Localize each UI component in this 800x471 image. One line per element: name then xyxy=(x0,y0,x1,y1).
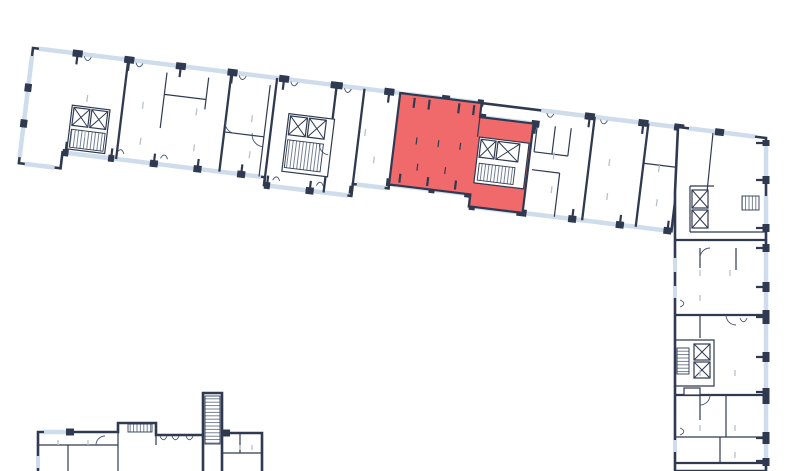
stairs-icon xyxy=(69,129,105,151)
elevator-icon xyxy=(90,110,108,130)
fragment-door-arc xyxy=(96,436,105,445)
stairs-icon xyxy=(205,396,220,444)
stairs-icon xyxy=(128,424,152,432)
fragment-door-squiggles xyxy=(160,436,193,440)
window-piers-cap xyxy=(715,132,724,133)
elevator-icon xyxy=(692,190,708,208)
elevator-icon xyxy=(694,362,710,378)
elevator-icon xyxy=(692,210,708,228)
core-middle xyxy=(282,114,335,177)
floor-plan-canvas xyxy=(0,0,800,471)
elevator-icon xyxy=(479,139,496,159)
bottom-fragment-group xyxy=(38,393,262,471)
floor-plan-svg xyxy=(0,0,800,471)
elevator-icon xyxy=(496,141,520,162)
right-wing-outline xyxy=(675,127,766,471)
stairs-icon xyxy=(677,348,689,374)
elevator-icon xyxy=(694,344,710,360)
duct-box xyxy=(684,388,700,395)
stairs-icon xyxy=(284,140,323,172)
elevator-icon xyxy=(72,107,90,127)
stairs-icon xyxy=(742,196,759,210)
elevator-icon xyxy=(307,118,326,139)
core-left xyxy=(67,105,110,153)
highlighted-unit-core xyxy=(474,137,529,189)
elevator-icon xyxy=(288,116,307,137)
right-wing-group xyxy=(675,127,766,471)
main-wing-group xyxy=(19,48,684,243)
